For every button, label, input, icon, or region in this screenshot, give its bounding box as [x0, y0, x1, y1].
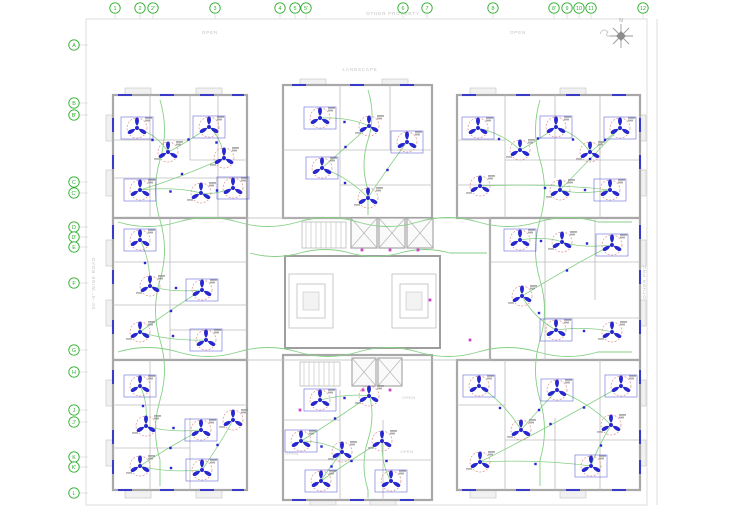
micro-label	[529, 419, 536, 421]
micro-label	[488, 451, 495, 453]
micro-label	[329, 473, 334, 475]
switch-point	[142, 405, 144, 407]
switch-point	[583, 406, 585, 408]
micro-label	[564, 322, 569, 324]
grid-bubble-top-8': 8'	[549, 3, 559, 19]
switch-point	[170, 310, 172, 312]
micro-label	[629, 378, 634, 380]
micro-label	[599, 458, 604, 460]
switch-point	[169, 447, 171, 449]
floor-plan-sheet: OTHER PROPERTY OPEN OPEN LANDSCAPE OPEN …	[0, 0, 730, 516]
micro-label	[377, 118, 382, 120]
micro-label	[176, 141, 183, 143]
grid-bubble-left-D: D	[69, 222, 88, 232]
micro-label	[618, 182, 623, 184]
open-shaft-label: OPEN	[285, 451, 298, 456]
micro-label	[376, 190, 381, 192]
wing-mid-left	[113, 218, 247, 360]
grid-bubble-top-10: 10	[574, 3, 584, 19]
open-label-right-yard: OPEN	[510, 30, 526, 35]
grid-bubble-left-J: J	[69, 405, 88, 415]
svg-text:5: 5	[294, 6, 297, 12]
road-label-left: 50'-0" WIDE ROAD	[91, 257, 96, 309]
micro-label	[219, 426, 225, 428]
micro-label	[148, 324, 153, 326]
micro-label	[350, 444, 355, 446]
switch-point	[344, 146, 346, 148]
micro-label	[209, 182, 216, 184]
svg-text:7: 7	[426, 6, 429, 12]
grid-bubble-left-K': K'	[69, 462, 88, 472]
switch-point	[334, 417, 336, 419]
svg-text:D': D'	[72, 235, 77, 241]
micro-label	[548, 248, 554, 250]
grid-bubble-top-8: 8	[488, 3, 498, 19]
switch-point	[549, 423, 551, 425]
switch-point	[172, 427, 174, 429]
micro-label	[390, 433, 395, 435]
micro-label	[148, 232, 153, 234]
floor-plan: OTHER PROPERTY OPEN OPEN LANDSCAPE OPEN …	[0, 0, 730, 516]
micro-label	[328, 110, 333, 112]
switch-point	[544, 187, 546, 189]
micro-label	[619, 414, 626, 416]
micro-label	[488, 178, 493, 180]
micro-label	[486, 120, 491, 122]
wing-top-center	[283, 85, 432, 218]
micro-label	[309, 433, 314, 435]
micro-label	[466, 192, 472, 194]
landscape-label-top: LANDSCAPE	[342, 67, 377, 72]
switch-point	[572, 138, 574, 140]
svg-text:J: J	[73, 408, 76, 414]
wing-top-left	[113, 95, 247, 218]
micro-label	[506, 156, 512, 158]
micro-label	[232, 147, 239, 149]
micro-label	[528, 232, 533, 234]
switch-point	[583, 330, 585, 332]
switch-point	[534, 463, 536, 465]
micro-label	[597, 431, 603, 433]
grid-bubble-left-C: C	[69, 177, 88, 187]
micro-label	[210, 164, 216, 166]
micro-label	[145, 120, 150, 122]
svg-text:J': J'	[72, 420, 76, 426]
grid-bubble-top-9: 9	[562, 3, 572, 19]
switch-point	[499, 407, 501, 409]
svg-text:9: 9	[566, 6, 569, 12]
micro-label	[148, 458, 153, 460]
switch-point	[187, 138, 189, 140]
grid-bubble-left-J': J'	[69, 417, 88, 427]
switch-point	[172, 335, 174, 337]
svg-text:6: 6	[402, 6, 405, 12]
svg-text:G: G	[72, 348, 76, 354]
grid-bubble-left-A: A	[69, 40, 88, 50]
svg-text:C': C'	[72, 191, 77, 197]
micro-label	[210, 462, 215, 464]
micro-label	[399, 473, 404, 475]
micro-label	[232, 150, 237, 152]
call-point-marker	[429, 299, 432, 302]
open-label-left-yard: OPEN	[202, 30, 218, 35]
micro-label	[620, 237, 625, 239]
switch-point	[498, 138, 500, 140]
micro-label	[568, 182, 573, 184]
micro-label	[565, 382, 570, 384]
grid-bubble-left-B: B	[69, 98, 88, 108]
call-point-marker	[362, 389, 365, 392]
grid-bubble-top-5': 5'	[301, 3, 311, 19]
svg-text:3: 3	[214, 6, 217, 12]
north-letter: N	[619, 18, 623, 24]
micro-label	[488, 454, 493, 456]
switch-point	[181, 173, 183, 175]
svg-text:C: C	[72, 180, 76, 186]
micro-label	[488, 175, 495, 177]
micro-label	[598, 141, 605, 143]
grid-bubble-top-11: 11	[586, 3, 596, 19]
micro-label	[508, 302, 514, 304]
micro-label	[570, 231, 577, 233]
grid-bubble-top-3: 3	[210, 3, 220, 19]
micro-label	[328, 392, 333, 394]
svg-text:H: H	[72, 370, 76, 376]
micro-label	[598, 338, 604, 340]
svg-text:L: L	[73, 491, 76, 497]
micro-label	[241, 409, 248, 411]
micro-label	[529, 422, 534, 424]
svg-text:11: 11	[588, 6, 594, 12]
micro-label	[620, 321, 627, 323]
micro-label	[148, 455, 155, 457]
micro-label	[154, 415, 161, 417]
grid-bubble-top-6: 6	[398, 3, 408, 19]
switch-point	[216, 444, 218, 446]
switch-point	[144, 262, 146, 264]
switch-point	[175, 287, 177, 289]
svg-text:K: K	[72, 455, 76, 461]
micro-label	[126, 472, 132, 474]
micro-label	[570, 234, 575, 236]
micro-label	[209, 422, 214, 424]
grid-bubble-top-1: 1	[110, 3, 120, 19]
grid-bubble-left-D': D'	[69, 232, 88, 242]
north-arrow-icon: N	[600, 18, 633, 48]
other-property-label-top: OTHER PROPERTY	[366, 11, 420, 16]
micro-label	[158, 278, 163, 280]
micro-label	[154, 418, 159, 420]
switch-point	[584, 189, 586, 191]
micro-label	[415, 134, 420, 136]
switch-point	[537, 137, 539, 139]
micro-label	[328, 458, 334, 460]
svg-text:B': B'	[72, 113, 77, 119]
svg-text:D: D	[72, 225, 76, 231]
micro-label	[598, 144, 603, 146]
micro-label	[136, 292, 142, 294]
svg-text:8: 8	[492, 6, 495, 12]
micro-label	[158, 275, 165, 277]
micro-label	[368, 447, 374, 449]
svg-text:2: 2	[139, 6, 142, 12]
switch-point	[538, 409, 540, 411]
switch-point	[170, 467, 172, 469]
grid-bubble-left-E: E	[69, 242, 88, 252]
open-shaft-label: OPEN	[402, 395, 415, 400]
grid-bubble-top-5: 5	[290, 3, 300, 19]
micro-label	[214, 332, 219, 334]
micro-label	[530, 288, 535, 290]
switch-point	[589, 158, 591, 160]
switch-point	[600, 444, 602, 446]
call-point-marker	[389, 389, 392, 392]
lift-core-top	[351, 218, 433, 248]
svg-text:10: 10	[576, 6, 582, 12]
wing-mid-right	[490, 218, 640, 360]
staircase-top	[302, 222, 346, 248]
open-shaft-label: OPEN	[400, 449, 413, 454]
grid-bubble-top-2: 2	[135, 3, 145, 19]
call-point-marker	[361, 249, 364, 252]
micro-label	[390, 430, 397, 432]
micro-label	[620, 324, 625, 326]
micro-label	[210, 282, 215, 284]
svg-text:8': 8'	[552, 6, 556, 12]
micro-label	[576, 158, 582, 160]
micro-label	[377, 388, 382, 390]
micro-label	[350, 441, 357, 443]
grid-bubble-left-B': B'	[69, 110, 88, 120]
micro-label	[241, 412, 246, 414]
micro-label	[487, 378, 492, 380]
micro-label	[530, 285, 537, 287]
grid-bubble-left-F: F	[69, 278, 88, 288]
grid-bubble-left-G: G	[69, 345, 88, 355]
micro-label	[564, 119, 569, 121]
switch-point	[586, 242, 588, 244]
micro-label	[187, 199, 193, 201]
micro-label	[148, 182, 153, 184]
call-point-marker	[299, 409, 302, 412]
grid-bubble-left-L: L	[69, 488, 88, 498]
svg-text:K': K'	[72, 465, 77, 471]
switch-point	[385, 460, 387, 462]
micro-label	[628, 120, 633, 122]
compass-script-note	[600, 30, 611, 36]
micro-label	[377, 115, 384, 117]
grid-bubble-top-12: 12	[638, 3, 648, 19]
switch-point	[538, 312, 540, 314]
switch-point	[343, 121, 345, 123]
wing-top-right	[457, 95, 640, 218]
micro-label	[528, 139, 535, 141]
micro-label	[209, 185, 214, 187]
micro-label	[376, 187, 383, 189]
switch-point	[320, 445, 322, 447]
svg-text:A: A	[72, 43, 76, 49]
grid-bubble-top-7: 7	[422, 3, 432, 19]
grid-bubble-left-C': C'	[69, 188, 88, 198]
micro-label	[546, 196, 552, 198]
switch-point	[169, 190, 171, 192]
micro-label	[148, 378, 153, 380]
switch-point	[540, 240, 542, 242]
svg-text:5': 5'	[304, 6, 308, 12]
switch-point	[386, 169, 388, 171]
micro-label	[217, 119, 222, 121]
call-point-marker	[389, 249, 392, 252]
grid-bubble-left-K: K	[69, 452, 88, 462]
micro-label	[568, 179, 575, 181]
switch-point	[566, 269, 568, 271]
call-point-marker	[417, 249, 420, 252]
svg-text:B: B	[72, 101, 76, 107]
micro-label	[619, 417, 624, 419]
micro-label	[148, 321, 155, 323]
switch-point	[330, 465, 332, 467]
switch-point	[344, 182, 346, 184]
svg-text:1: 1	[114, 6, 117, 12]
svg-text:4: 4	[279, 6, 282, 12]
svg-text:E: E	[72, 245, 76, 251]
micro-label	[126, 338, 132, 340]
micro-label	[377, 385, 384, 387]
micro-label	[507, 436, 513, 438]
micro-label	[176, 144, 181, 146]
micro-label	[354, 204, 360, 206]
svg-text:12: 12	[640, 6, 646, 12]
micro-label	[132, 432, 138, 434]
switch-point	[343, 397, 345, 399]
micro-label	[528, 142, 533, 144]
micro-label	[355, 132, 361, 134]
micro-label	[154, 158, 160, 160]
switch-point	[215, 141, 217, 143]
grid-bubble-top-4: 4	[275, 3, 285, 19]
call-point-marker	[469, 339, 472, 342]
micro-label	[355, 402, 361, 404]
micro-label	[241, 180, 246, 182]
grid-bubble-top-2': 2'	[148, 3, 158, 19]
grid-bubble-left-H: H	[69, 367, 88, 377]
svg-text:2': 2'	[151, 6, 155, 12]
micro-label	[466, 468, 472, 470]
switch-point	[350, 460, 352, 462]
micro-label	[330, 160, 335, 162]
